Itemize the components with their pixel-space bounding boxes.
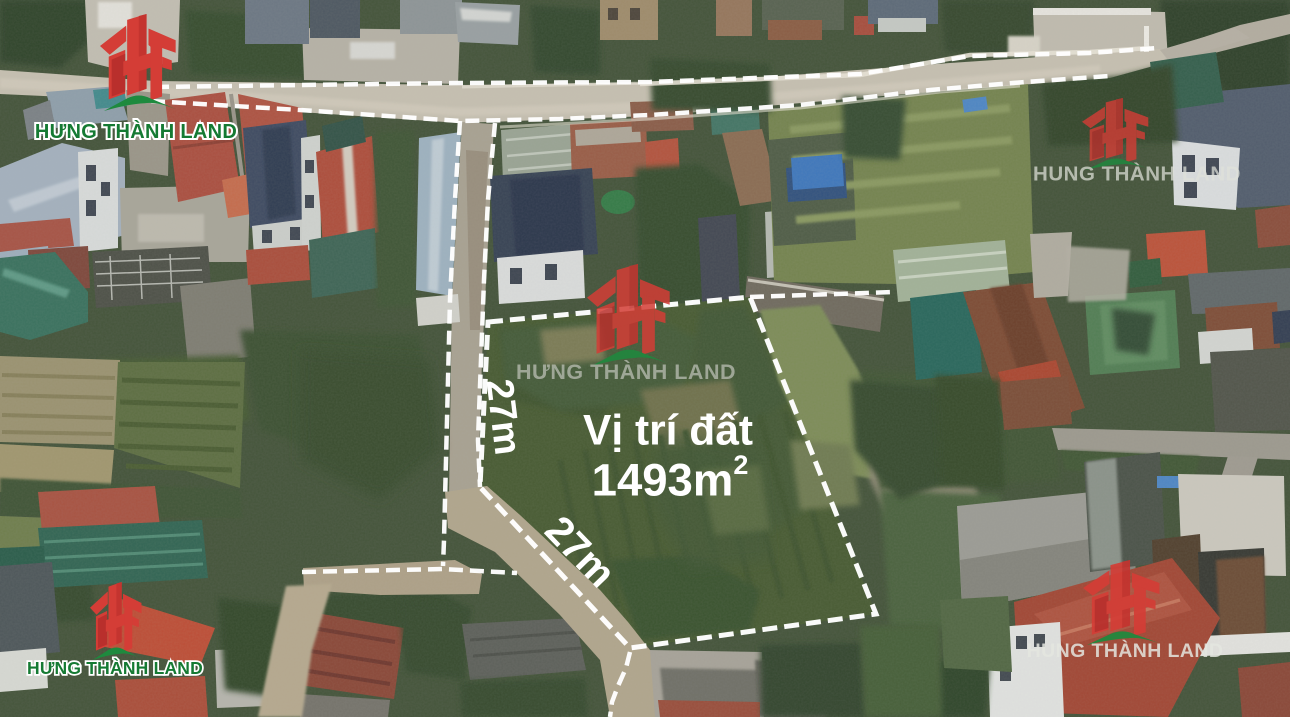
- svg-text:HƯNG THÀNH LAND: HƯNG THÀNH LAND: [516, 359, 736, 384]
- svg-text:1493m2: 1493m2: [592, 450, 749, 506]
- svg-text:HƯNG THÀNH LAND: HƯNG THÀNH LAND: [35, 120, 237, 143]
- svg-text:HƯNG THÀNH LAND: HƯNG THÀNH LAND: [27, 657, 203, 678]
- svg-text:HUNG THÀNH LAND: HUNG THÀNH LAND: [1027, 639, 1224, 662]
- svg-text:Vị trí đất: Vị trí đất: [583, 408, 753, 455]
- svg-text:HUNG THÀNH LAND: HUNG THÀNH LAND: [1033, 163, 1241, 186]
